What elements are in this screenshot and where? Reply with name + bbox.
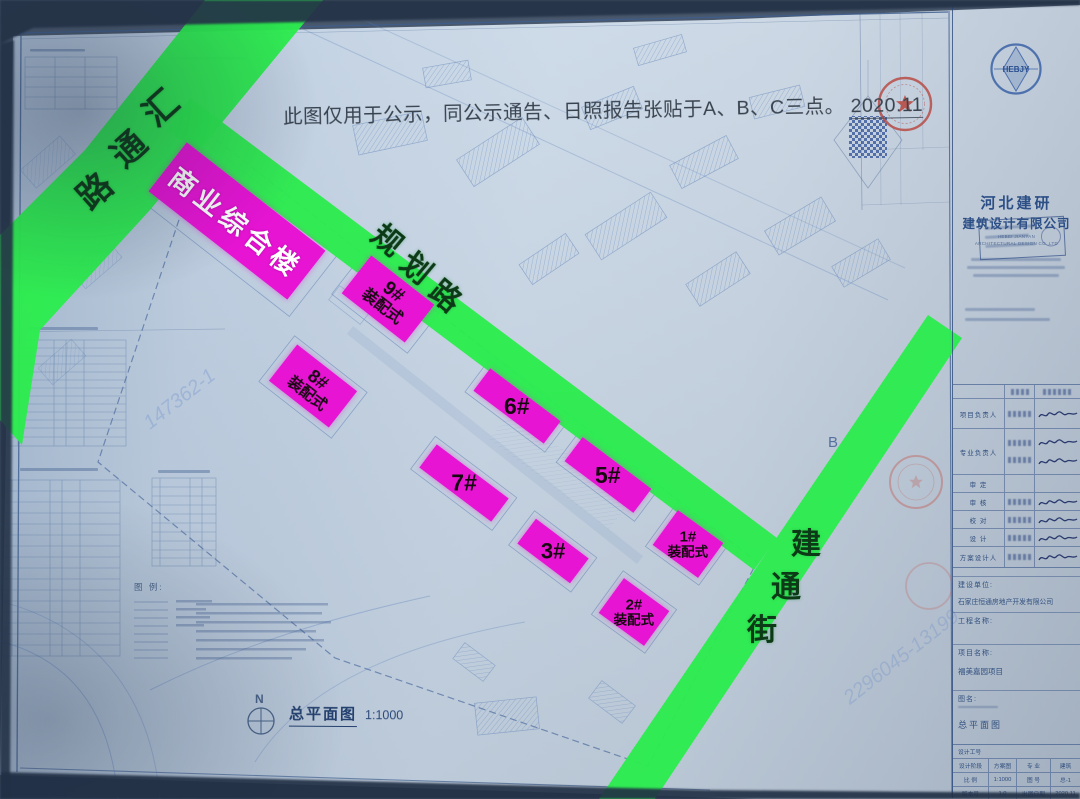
grid-cell: 专 业 [1017,759,1051,772]
north-label: N [255,692,264,706]
site-plan-photo: 图 例: N B 14 [0,0,1080,799]
notice-date: 2020.11 [850,94,923,119]
company-name-cn-1: 河北建研 [953,192,1080,213]
grid-cell: 出图日期 [1017,787,1051,799]
road-label-jiantong-char-2: 通 [771,562,801,606]
sig-row-label: 项目负责人 [953,399,1005,428]
sig-row-label: 设 计 [953,529,1005,546]
company-address-blur [967,266,1065,269]
signature-scribble [1038,408,1078,420]
grid-cell: 总-1 [1051,773,1080,786]
watermark-digits-1: 147362-1 [140,365,220,434]
north-arrow: N [248,692,274,734]
watermark-digits-2: 2296045-13199 [839,605,964,709]
drawing-sub-blur [958,706,998,708]
red-seal-middle [890,456,942,508]
sig-row-label: 专业负责人 [953,429,1005,474]
building-5-number: 5# [595,463,621,487]
plan-scale: 1:1000 [365,708,403,722]
grid-cell: 1.0 [989,787,1017,799]
grid-cell: 版本号 [953,787,989,799]
signature-scribble [1038,496,1078,508]
building-2-number: 2# [626,597,643,613]
company-address-blur [973,274,1059,277]
grid-cell: 图 号 [1017,773,1051,786]
grid-cell: 建筑 [1051,759,1080,772]
signature-scribble [1038,551,1078,563]
project-name-label: 项目名称: [953,648,1080,658]
signature-scribble [1038,455,1078,467]
road-label-jiantong-char-3: 街 [747,605,777,649]
grid-cell: 方案图 [989,759,1017,772]
road-band-jiantong [599,315,962,799]
road-label-jiantong-char-1: 建 [791,519,821,563]
signature-scribble [1038,514,1078,526]
building-2-type: 装配式 [614,613,655,627]
project-label: 工程名称: [953,616,1080,626]
job-number-label: 设计工号 [953,745,1080,758]
registration-seal-icon [1040,226,1061,247]
legend-block: 图 例: [134,582,331,660]
sig-row-label: 审 定 [953,475,1005,492]
signature-table: 项目负责人 专业负责人 审 定 审 核 [953,384,1080,568]
certificate-line-blur [965,308,1035,311]
grid-cell: 设计阶段 [953,759,989,772]
plan-title-group: 总平面图 1:1000 [289,703,403,728]
drawing-name-label: 图名: [953,694,1080,704]
company-logo: HEBJY [989,42,1043,96]
building-7-number: 7# [451,471,477,495]
building-1-number: 1# [680,529,697,545]
sig-row-label: 校 对 [953,511,1005,528]
signature-scribble [1038,436,1078,448]
certificate-line-blur [965,318,1050,321]
project-name: 福美嘉园项目 [953,666,1080,677]
survey-mark [834,60,902,188]
building-6-number: 6# [504,394,530,418]
building-1-type: 装配式 [668,545,709,559]
company-logo-text: HEBJY [1003,65,1030,74]
red-seal-lower [906,563,952,609]
client-name: 石家庄恒通房地产开发有限公司 [953,596,1080,606]
plan-title: 总平面图 [289,703,357,727]
grid-cell: 比 例 [953,773,989,786]
client-label: 建设单位: [953,580,1080,590]
registration-stamp-box [978,216,1066,260]
grid-cell: 1:1000 [989,773,1017,786]
signature-scribble [1038,532,1078,544]
drawing-name: 总平面图 [953,718,1080,731]
title-block: HEBJY 河北建研 建筑设计有限公司 HEBEI JIANYAN ARCHIT… [952,6,1080,798]
grid-cell: 2020.11 [1051,787,1080,799]
legend-title: 图 例: [134,582,164,592]
marker-b: B [828,434,838,451]
drawing-info-grid: 设计工号 设计阶段 方案图 专 业 建筑 比 例 1:1000 图 号 总-1 … [953,744,1080,799]
building-3-number: 3# [541,539,565,562]
sig-row-label: 审 核 [953,493,1005,510]
sig-row-label: 方案设计人 [953,547,1005,567]
